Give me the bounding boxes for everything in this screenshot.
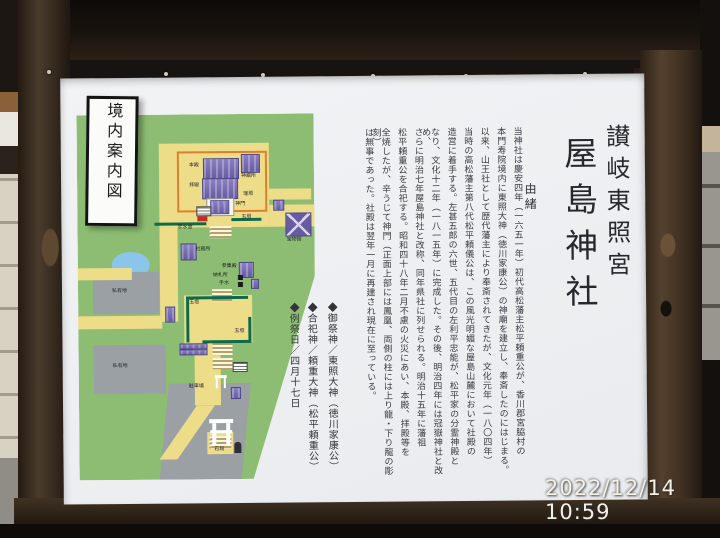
camera-timestamp: 2022/12/14 10:59	[545, 476, 720, 524]
shrine-information-sign: 本殿 拝殿 神饌所 瑞垣 神門 玉垣 手水舎 社務所 参集殿 納札所 手水 宝物…	[60, 73, 648, 504]
map-label-tamagaki-gate: 玉垣	[241, 215, 251, 221]
map-label-tamagaki-plaza2: 玉垣	[234, 329, 244, 335]
map-bench-icon	[234, 363, 247, 371]
map-label-shinsensho: 神饌所	[241, 174, 256, 180]
you-are-here-marker	[197, 216, 207, 221]
map-label-private-lot-upper: 私有地	[112, 289, 127, 295]
torii-leg	[212, 423, 216, 445]
history-section-label: 由緒	[522, 182, 539, 222]
map-label-honden: 本殿	[189, 163, 199, 169]
info-line-enshrined: ◆合祀神／頼重大神（松平頼重公）	[300, 302, 317, 480]
map-label-homotsukan: 宝物館	[287, 237, 302, 243]
info-line-festival: ◆例祭日／四月十七日	[282, 302, 299, 480]
torii-leg	[216, 378, 218, 388]
map-shed-bar	[181, 350, 207, 354]
map-small-building	[252, 280, 258, 288]
map-hokora-building	[232, 388, 240, 398]
ground-shadow	[0, 524, 720, 538]
screw-icon	[164, 72, 168, 76]
map-path-northeast	[261, 188, 311, 199]
map-chozuya-icon	[197, 207, 210, 215]
info-line-deity: ◆御祭神／東照大神（徳川家康公）	[320, 302, 337, 480]
map-lantern-icon	[234, 442, 241, 453]
map-label-haiden: 拝殿	[189, 183, 199, 189]
torii-leg	[226, 423, 230, 445]
history-column: 全焼したが、辛うじて神門（正面上部には鳳凰、両側の柱には上り龍・下り龍の彫刻）	[374, 128, 393, 484]
map-shinsensho-building	[242, 155, 259, 172]
map-label-private-lot-lower: 私有地	[113, 364, 128, 370]
shrine-name-text: 屋島神社	[553, 136, 603, 361]
map-storehouse-building	[166, 308, 174, 322]
screw-icon	[47, 70, 51, 74]
wooden-post-right	[640, 50, 702, 538]
map-marker-square	[238, 282, 243, 287]
map-label-ishidan: 石段	[214, 447, 224, 453]
history-column: は無事であった。社殿は翌年一月に再建され現在に至っている。	[357, 128, 376, 484]
torii-crossbar	[210, 430, 232, 433]
map-shrine-gate-building	[211, 201, 228, 213]
map-label-shamusho: 社務所	[196, 247, 211, 253]
map-main-hall-building	[204, 159, 238, 178]
map-label-shinmon: 神門	[235, 202, 245, 208]
map-label-chozuya: 手水舎	[177, 225, 192, 231]
map-marker-square	[238, 275, 243, 280]
map-path-pond	[78, 268, 132, 280]
map-label-chozu: 手水	[219, 281, 229, 287]
map-steps-icon	[209, 226, 231, 238]
sunlit-stone-right	[699, 126, 720, 152]
map-label-sanshuden: 参集殿	[222, 264, 237, 270]
map-label-nosatsusho: 納札所	[213, 273, 228, 279]
map-label-parking: 駐車場	[189, 384, 204, 390]
map-label-mizugaki: 瑞垣	[243, 192, 253, 198]
map-shed-bar	[180, 344, 206, 348]
map-steps-icon	[213, 358, 233, 369]
map-middle-torii-icon	[215, 375, 227, 388]
map-private-lot-lower	[93, 345, 165, 395]
map-worship-hall-building	[203, 179, 237, 198]
map-main-torii-icon	[209, 419, 233, 445]
map-treasure-hall-building	[286, 213, 310, 235]
map-label-tamagaki-plaza: 玉垣	[189, 300, 199, 306]
torii-leg	[224, 378, 226, 388]
map-office-building	[182, 244, 196, 259]
map-path-west	[78, 316, 162, 330]
map-title: 境内案内図	[99, 99, 125, 223]
map-fence-line	[202, 340, 250, 343]
shrine-title-text: 讃岐東照宮	[598, 124, 635, 314]
photo-of-shrine-notice-board: 本殿 拝殿 神饌所 瑞垣 神門 玉垣 手水舎 社務所 参集殿 納札所 手水 宝物…	[0, 0, 720, 538]
map-small-shrine-building	[274, 201, 283, 210]
map-title-card: 境内案内図	[85, 96, 139, 227]
